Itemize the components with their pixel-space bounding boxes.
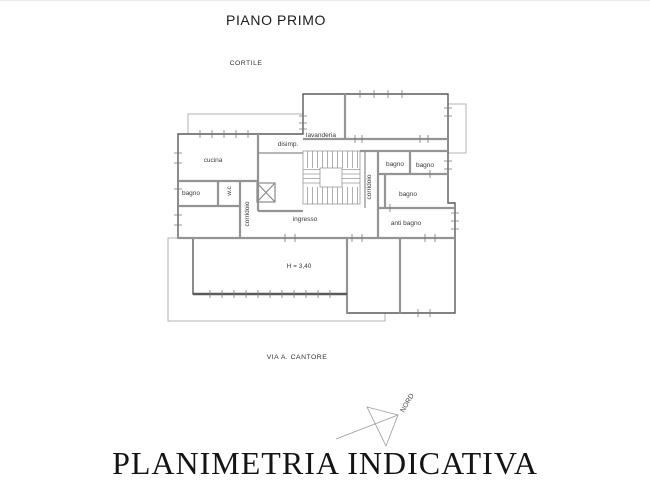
elevator-shaft [257, 183, 275, 202]
footer-title: PLANIMETRIA INDICATIVA [0, 445, 650, 482]
room-label-corridoio-left: corridoio [244, 201, 251, 226]
balcony-right [448, 104, 466, 153]
stair-landing [320, 168, 342, 187]
floor-plan-drawing: CORTILE VIA A. CANTORE [0, 1, 650, 488]
courtyard-label: CORTILE [230, 60, 263, 67]
stair-treads-left [303, 168, 320, 187]
north-label: NORD [400, 393, 416, 414]
room-label-bagno-middle: bagno [399, 191, 417, 198]
room-label-corridoio-right: corridoio [366, 174, 373, 199]
room-label-anti-bagno: anti bagno [391, 220, 422, 227]
terrace-bottom-left [168, 238, 385, 321]
elevator-cross [257, 183, 275, 202]
room-label-cucina: cucina [204, 157, 223, 164]
room-label-bagno-left: bagno [182, 190, 200, 197]
street-label: VIA A. CANTORE [267, 354, 328, 361]
room-label-bagno-top-right: bagno [416, 162, 434, 169]
room-label-bagno-top-left: bagno [386, 161, 404, 168]
stairwell [303, 151, 360, 204]
stair-treads-top [303, 151, 360, 168]
north-arrow-head [367, 407, 398, 446]
north-arrow-tail [336, 415, 398, 439]
room-label-lavanderia: lavanderia [306, 132, 336, 139]
drawing-sheet: PIANO PRIMO CORTILE VIA A. CANTORE [0, 0, 650, 488]
stair-treads-right [342, 168, 360, 187]
room-label-ingresso: ingresso [293, 216, 318, 223]
north-arrow: NORD [336, 393, 416, 446]
stair-treads-bottom [303, 187, 360, 204]
room-label-disimpegno: disimp. [278, 141, 299, 148]
terrace-top-left [188, 114, 303, 134]
ceiling-height-note: H = 3,40 [287, 263, 312, 270]
room-label-wc: w.c [226, 186, 233, 197]
